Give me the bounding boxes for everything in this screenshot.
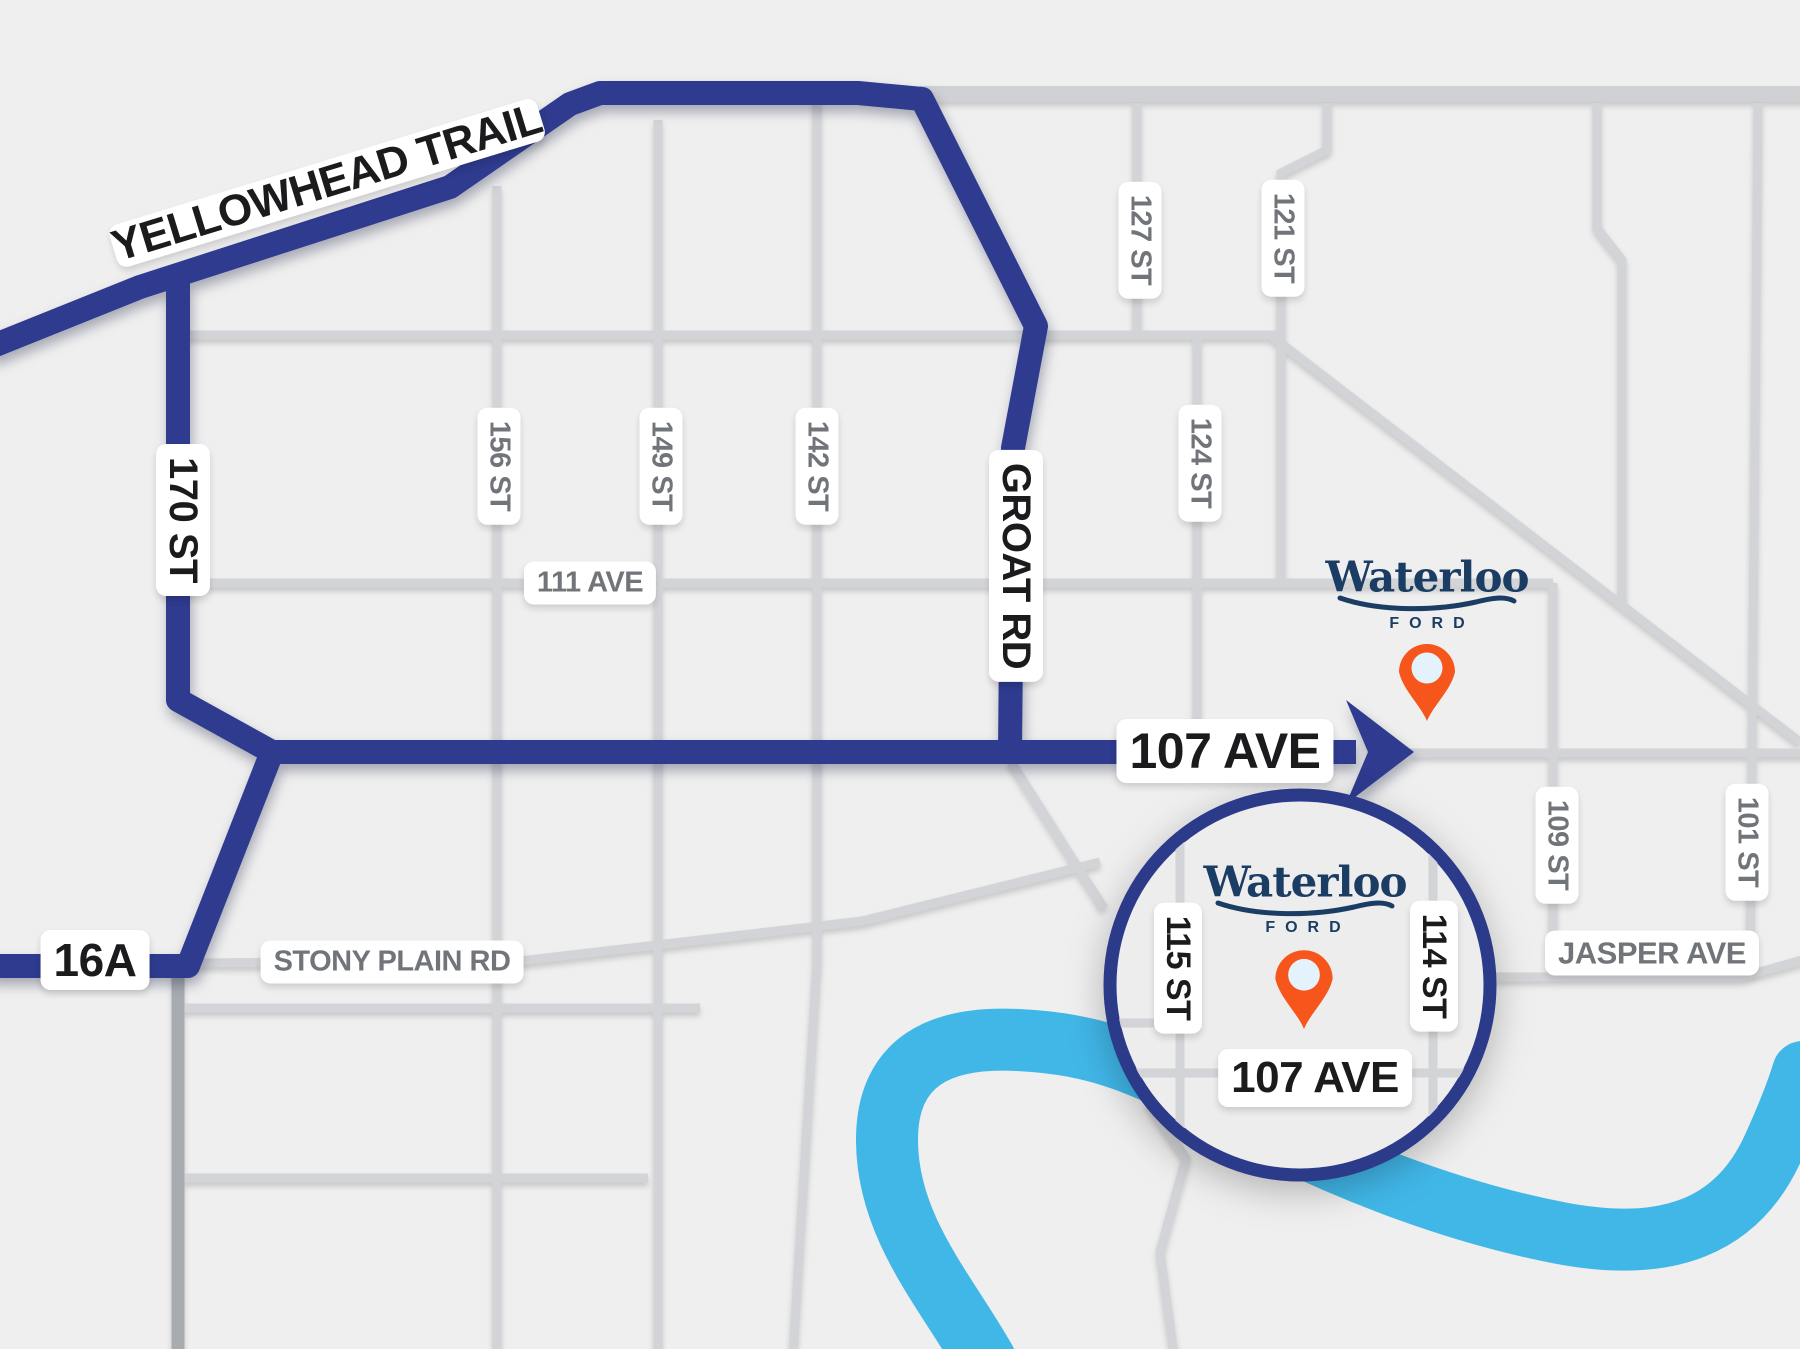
label-text: 127 ST — [1125, 195, 1157, 286]
road-label-109-st: 109 ST — [1536, 787, 1579, 904]
label-text: 107 AVE — [1231, 1053, 1399, 1102]
label-text: GROAT RD — [994, 463, 1038, 669]
label-text: 149 ST — [646, 421, 678, 512]
label-text: 115 ST — [1159, 916, 1197, 1021]
road-label-121-st: 121 ST — [1262, 180, 1305, 297]
road-label-156-st: 156 ST — [478, 408, 521, 525]
label-text: 170 ST — [161, 457, 205, 583]
road-label-149-st: 149 ST — [640, 408, 683, 525]
label-text: 121 ST — [1268, 193, 1300, 284]
label-text: 114 ST — [1415, 914, 1453, 1019]
label-text: 142 ST — [802, 421, 834, 512]
inset-label-114-st: 114 ST — [1410, 901, 1458, 1032]
road-label-124-st: 124 ST — [1179, 405, 1222, 522]
road-142-st — [793, 100, 817, 1349]
inset-logo-swoosh — [1214, 895, 1396, 921]
inset-label-115-st: 115 ST — [1154, 903, 1202, 1034]
inset-label-107-ave: 107 AVE — [1218, 1049, 1412, 1107]
road-label-jasper-ave: JASPER AVE — [1545, 931, 1759, 976]
road-label-111-ave: 111 AVE — [524, 562, 656, 605]
logo-swoosh — [1336, 590, 1518, 616]
road-groat-south — [1010, 760, 1104, 908]
inset-logo-division: FORD — [1255, 919, 1350, 937]
location-pin-icon — [1395, 634, 1459, 722]
road-label-127-st: 127 ST — [1119, 182, 1162, 299]
road-116-st — [1597, 103, 1622, 606]
label-text: 111 AVE — [537, 567, 643, 599]
road-label-stony-plain-rd: STONY PLAIN RD — [261, 941, 524, 984]
road-kingsway-diagonal — [1269, 334, 1800, 742]
road-label-107-ave: 107 AVE — [1116, 719, 1333, 783]
dealership-logo-division: FORD — [1379, 615, 1474, 633]
label-text: 16A — [54, 934, 137, 986]
label-text: 101 ST — [1732, 797, 1764, 888]
road-label-142-st: 142 ST — [796, 408, 839, 525]
minor-roads-layer — [178, 94, 1800, 1349]
label-text: 156 ST — [484, 421, 516, 512]
label-text: STONY PLAIN RD — [274, 946, 511, 978]
road-label-101-st: 101 ST — [1726, 784, 1769, 901]
label-text: JASPER AVE — [1558, 936, 1746, 971]
road-label-groat-rd: GROAT RD — [989, 450, 1043, 682]
label-text: 107 AVE — [1129, 723, 1320, 779]
dealership-directions-map: YELLOWHEAD TRAIL 170 ST 156 ST 149 ST 14… — [0, 0, 1800, 1349]
road-label-16a: 16A — [41, 930, 150, 990]
label-text: 109 ST — [1542, 800, 1574, 891]
label-text: 124 ST — [1185, 418, 1217, 509]
inset-location-pin-icon — [1271, 940, 1337, 1030]
road-label-170-st: 170 ST — [156, 444, 210, 596]
